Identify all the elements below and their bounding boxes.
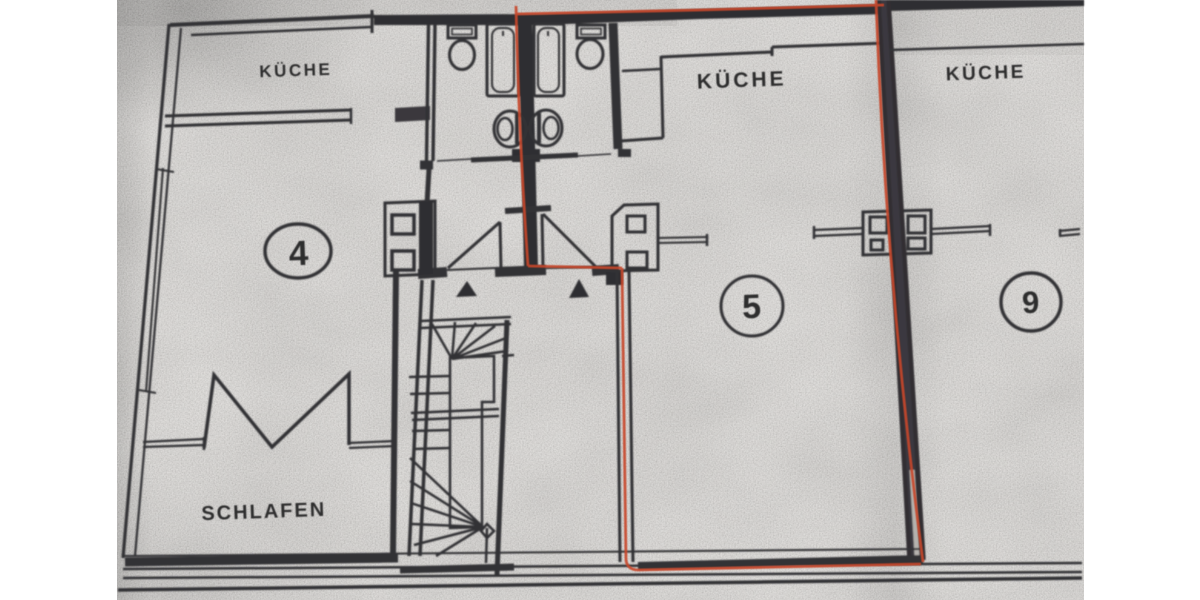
svg-text:5: 5 <box>741 288 761 327</box>
svg-text:SCHLAFEN: SCHLAFEN <box>201 499 327 525</box>
svg-text:KÜCHE: KÜCHE <box>259 60 333 82</box>
svg-text:KÜCHE: KÜCHE <box>697 67 787 93</box>
svg-text:KÜCHE: KÜCHE <box>945 62 1026 86</box>
svg-text:4: 4 <box>288 234 309 274</box>
svg-text:9: 9 <box>1021 285 1039 321</box>
